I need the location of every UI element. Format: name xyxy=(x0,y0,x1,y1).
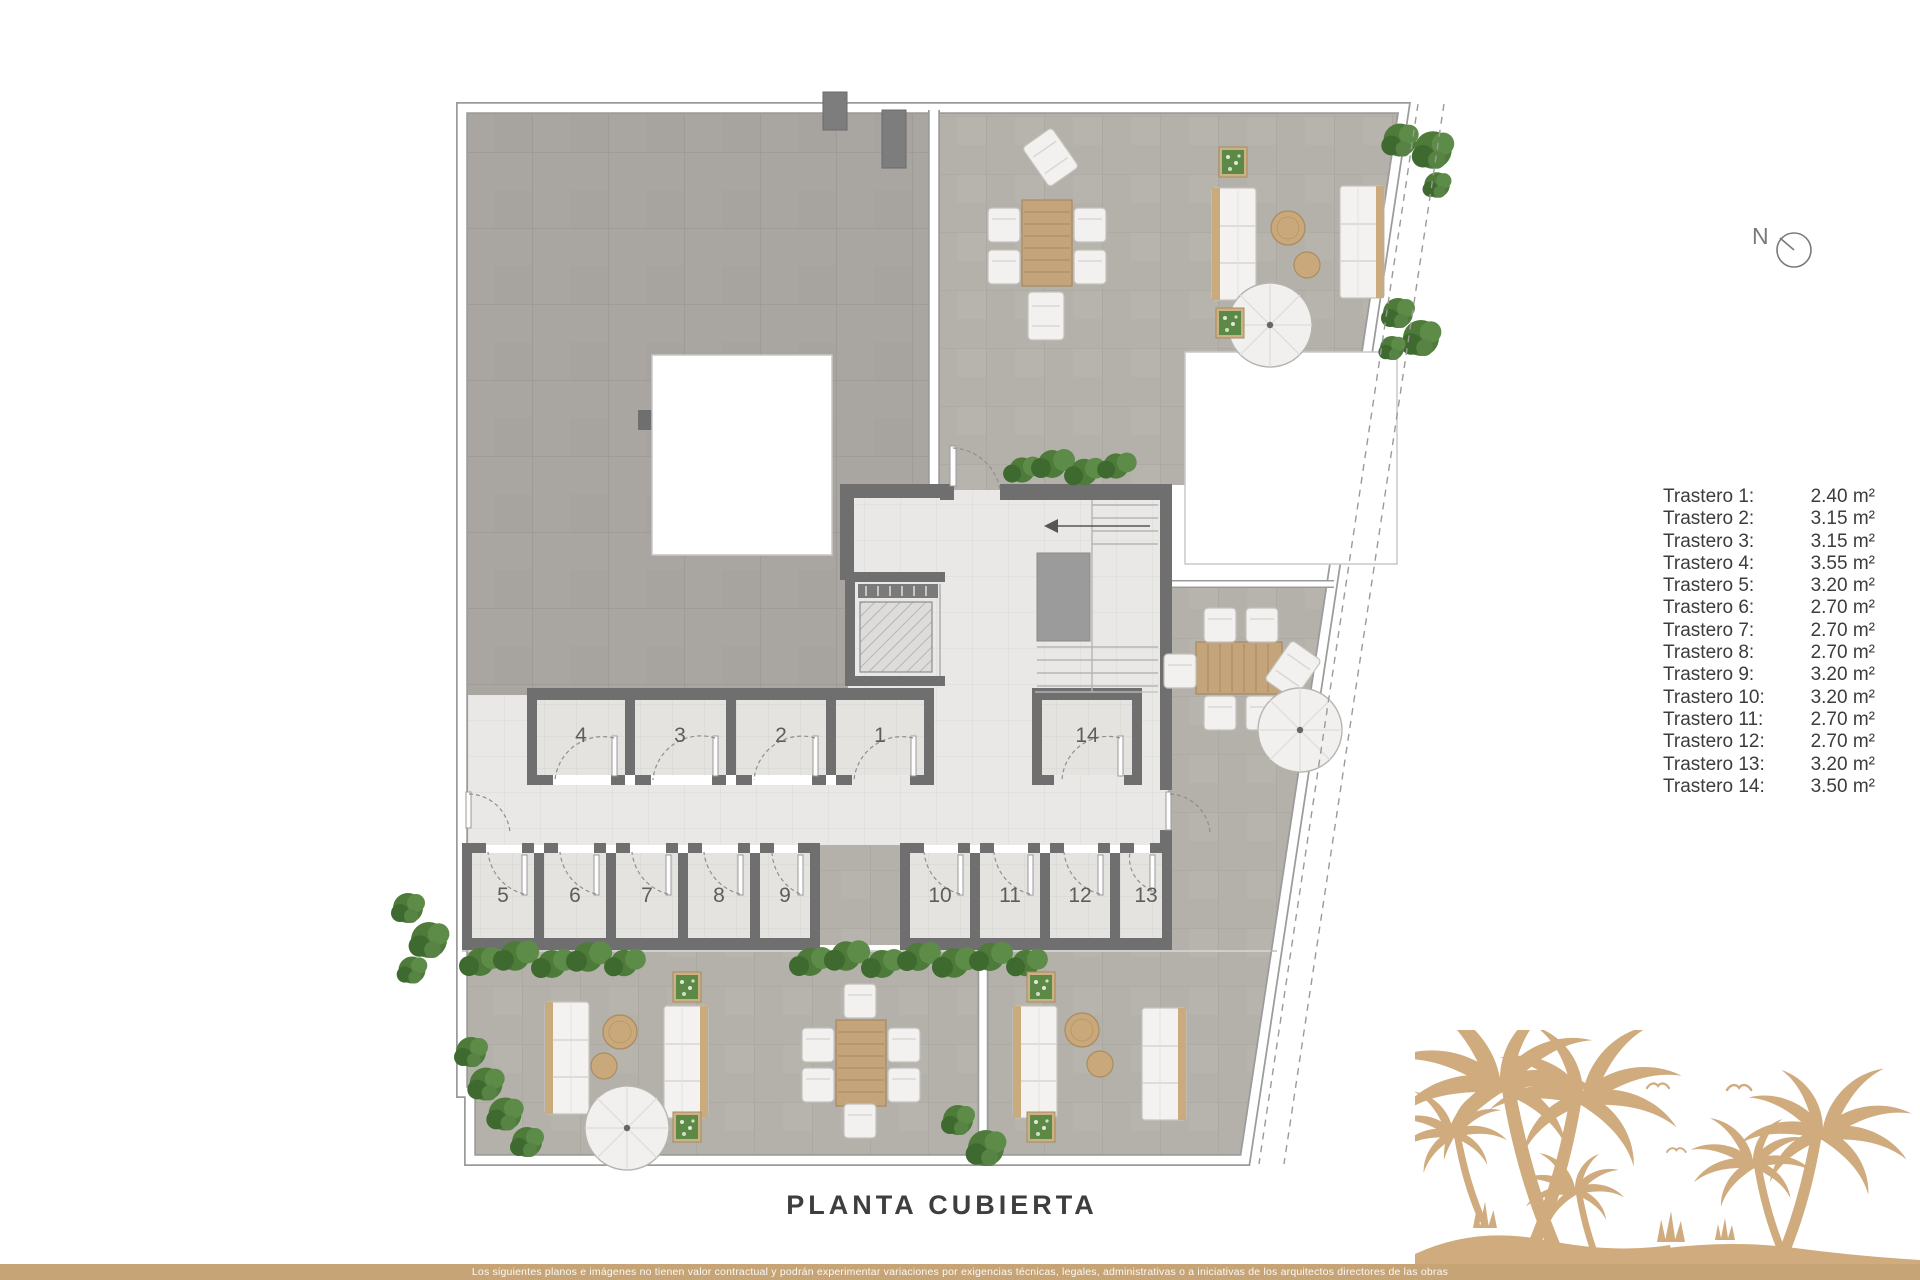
legend-label: Trastero 6: xyxy=(1663,597,1754,619)
room-12-label: 12 xyxy=(1068,884,1091,907)
room-13-label: 13 xyxy=(1134,884,1157,907)
legend-value: 2.70 m² xyxy=(1811,620,1875,642)
room-8-label: 8 xyxy=(713,884,725,907)
legend-row: Trastero 5:3.20 m² xyxy=(1663,575,1875,597)
legend-value: 2.70 m² xyxy=(1811,709,1875,731)
legend-value: 3.20 m² xyxy=(1811,754,1875,776)
legend-label: Trastero 3: xyxy=(1663,531,1754,553)
room-5-label: 5 xyxy=(497,884,509,907)
legend-label: Trastero 7: xyxy=(1663,620,1754,642)
legend-row: Trastero 13:3.20 m² xyxy=(1663,754,1875,776)
legend-label: Trastero 5: xyxy=(1663,575,1754,597)
room-1-label: 1 xyxy=(874,724,886,747)
legend-row: Trastero 9:3.20 m² xyxy=(1663,664,1875,686)
legend-value: 3.55 m² xyxy=(1811,553,1875,575)
legend-label: Trastero 10: xyxy=(1663,687,1765,709)
legend-row: Trastero 14:3.50 m² xyxy=(1663,776,1875,798)
legend-row: Trastero 4:3.55 m² xyxy=(1663,553,1875,575)
footer-disclaimer-bar: Los siguientes planos e imágenes no tien… xyxy=(0,1264,1920,1280)
legend-label: Trastero 2: xyxy=(1663,508,1754,530)
legend-row: Trastero 7:2.70 m² xyxy=(1663,620,1875,642)
legend-label: Trastero 14: xyxy=(1663,776,1765,798)
room-14-label: 14 xyxy=(1075,724,1099,747)
legend-label: Trastero 13: xyxy=(1663,754,1765,776)
legend-value: 3.20 m² xyxy=(1811,687,1875,709)
legend-row: Trastero 3:3.15 m² xyxy=(1663,531,1875,553)
room-10-label: 10 xyxy=(928,884,951,907)
legend-value: 2.40 m² xyxy=(1811,486,1875,508)
room-11-label: 11 xyxy=(999,884,1021,907)
room-2-label: 2 xyxy=(775,724,787,747)
legend-row: Trastero 8:2.70 m² xyxy=(1663,642,1875,664)
legend-value: 3.50 m² xyxy=(1811,776,1875,798)
legend-value: 3.15 m² xyxy=(1811,531,1875,553)
room-4-label: 4 xyxy=(575,724,587,747)
room-3-label: 3 xyxy=(674,724,686,747)
legend-value: 2.70 m² xyxy=(1811,642,1875,664)
legend-label: Trastero 8: xyxy=(1663,642,1754,664)
page-title: PLANTA CUBIERTA xyxy=(692,1190,1192,1221)
floor-plan-page: 4 3 2 1 14 5 6 7 8 9 10 11 12 13 xyxy=(0,0,1920,1280)
legend-row: Trastero 10:3.20 m² xyxy=(1663,687,1875,709)
room-6-label: 6 xyxy=(569,884,581,907)
legend-label: Trastero 1: xyxy=(1663,486,1754,508)
room-7-label: 7 xyxy=(641,884,653,907)
legend-value: 2.70 m² xyxy=(1811,731,1875,753)
palm-trees-decoration xyxy=(1415,1030,1920,1264)
legend-label: Trastero 9: xyxy=(1663,664,1754,686)
legend-value: 3.15 m² xyxy=(1811,508,1875,530)
legend-row: Trastero 11:2.70 m² xyxy=(1663,709,1875,731)
legend-row: Trastero 2:3.15 m² xyxy=(1663,508,1875,530)
north-label: N xyxy=(1752,223,1769,249)
north-compass: N xyxy=(1746,218,1846,288)
legend-label: Trastero 4: xyxy=(1663,553,1754,575)
legend-label: Trastero 12: xyxy=(1663,731,1765,753)
legend-row: Trastero 6:2.70 m² xyxy=(1663,597,1875,619)
storage-area-legend: Trastero 1:2.40 m² Trastero 2:3.15 m² Tr… xyxy=(1663,486,1875,798)
legend-row: Trastero 12:2.70 m² xyxy=(1663,731,1875,753)
elevator xyxy=(858,584,940,676)
legend-value: 3.20 m² xyxy=(1811,664,1875,686)
legend-value: 2.70 m² xyxy=(1811,597,1875,619)
disclaimer-text: Los siguientes planos e imágenes no tien… xyxy=(472,1266,1448,1278)
legend-row: Trastero 1:2.40 m² xyxy=(1663,486,1875,508)
room-9-label: 9 xyxy=(779,884,791,907)
legend-value: 3.20 m² xyxy=(1811,575,1875,597)
legend-label: Trastero 11: xyxy=(1663,709,1763,731)
